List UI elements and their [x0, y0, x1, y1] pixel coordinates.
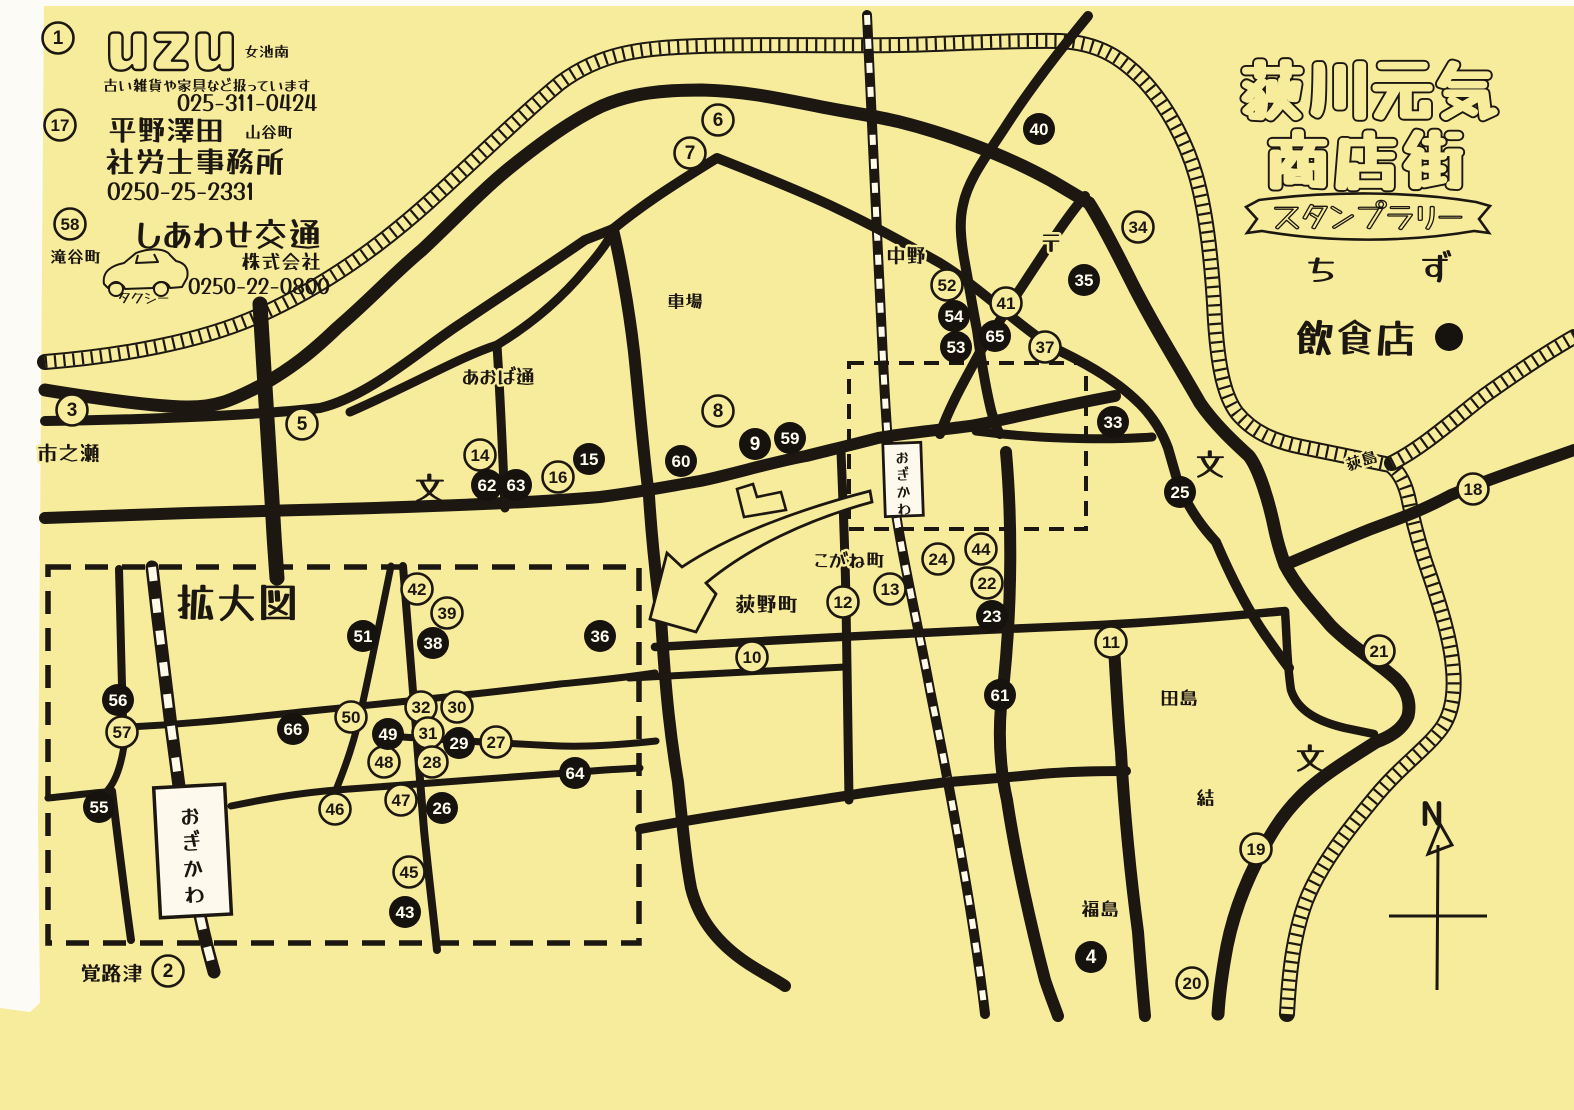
svg-text:53: 53 — [947, 338, 966, 357]
svg-text:35: 35 — [1075, 271, 1094, 290]
svg-text:48: 48 — [375, 753, 394, 772]
svg-text:43: 43 — [396, 903, 415, 922]
svg-text:39: 39 — [438, 604, 457, 623]
svg-text:52: 52 — [938, 276, 957, 295]
svg-text:28: 28 — [423, 753, 442, 772]
svg-text:36: 36 — [591, 627, 610, 646]
svg-text:21: 21 — [1370, 642, 1389, 661]
svg-text:11: 11 — [1102, 633, 1120, 652]
svg-text:62: 62 — [478, 476, 497, 495]
svg-text:7: 7 — [685, 143, 696, 164]
svg-text:47: 47 — [392, 791, 411, 810]
svg-text:10: 10 — [743, 648, 762, 667]
svg-text:23: 23 — [983, 607, 1002, 626]
svg-text:56: 56 — [109, 691, 128, 710]
svg-text:27: 27 — [487, 733, 506, 752]
svg-text:22: 22 — [978, 574, 997, 593]
svg-text:13: 13 — [881, 580, 900, 599]
svg-text:30: 30 — [448, 698, 467, 717]
svg-text:49: 49 — [379, 725, 398, 744]
svg-text:57: 57 — [113, 723, 132, 742]
svg-text:19: 19 — [1247, 840, 1266, 859]
svg-text:41: 41 — [997, 294, 1016, 313]
svg-text:1: 1 — [53, 28, 64, 49]
svg-text:16: 16 — [549, 468, 568, 487]
svg-text:3: 3 — [67, 400, 78, 421]
svg-text:20: 20 — [1183, 974, 1202, 993]
svg-text:5: 5 — [297, 414, 308, 435]
svg-text:4: 4 — [1086, 947, 1097, 968]
svg-text:8: 8 — [713, 401, 724, 422]
svg-text:64: 64 — [566, 764, 585, 783]
svg-text:2: 2 — [163, 961, 174, 982]
svg-text:60: 60 — [672, 452, 691, 471]
svg-text:14: 14 — [471, 446, 490, 465]
svg-text:9: 9 — [750, 434, 761, 455]
svg-text:65: 65 — [986, 327, 1005, 346]
svg-text:25: 25 — [1171, 483, 1190, 502]
svg-text:38: 38 — [424, 634, 443, 653]
svg-text:26: 26 — [433, 799, 452, 818]
svg-text:58: 58 — [61, 215, 80, 234]
svg-text:66: 66 — [284, 720, 303, 739]
svg-text:33: 33 — [1104, 413, 1123, 432]
svg-text:17: 17 — [51, 116, 70, 135]
svg-text:12: 12 — [834, 593, 853, 612]
svg-text:59: 59 — [781, 429, 800, 448]
svg-text:46: 46 — [326, 800, 345, 819]
svg-text:6: 6 — [713, 110, 724, 131]
svg-text:31: 31 — [419, 724, 438, 743]
svg-text:29: 29 — [450, 734, 469, 753]
svg-text:32: 32 — [412, 698, 431, 717]
svg-text:61: 61 — [991, 686, 1010, 705]
svg-text:45: 45 — [400, 863, 419, 882]
svg-text:63: 63 — [507, 476, 526, 495]
svg-text:55: 55 — [90, 798, 109, 817]
svg-text:18: 18 — [1464, 480, 1483, 499]
svg-text:24: 24 — [929, 550, 948, 569]
svg-text:54: 54 — [945, 307, 964, 326]
svg-text:37: 37 — [1036, 338, 1055, 357]
svg-text:51: 51 — [354, 627, 373, 646]
svg-text:34: 34 — [1129, 218, 1148, 237]
svg-text:15: 15 — [580, 450, 599, 469]
svg-text:44: 44 — [972, 540, 991, 559]
svg-text:40: 40 — [1030, 120, 1049, 139]
svg-text:50: 50 — [342, 708, 361, 727]
svg-text:42: 42 — [408, 580, 427, 599]
